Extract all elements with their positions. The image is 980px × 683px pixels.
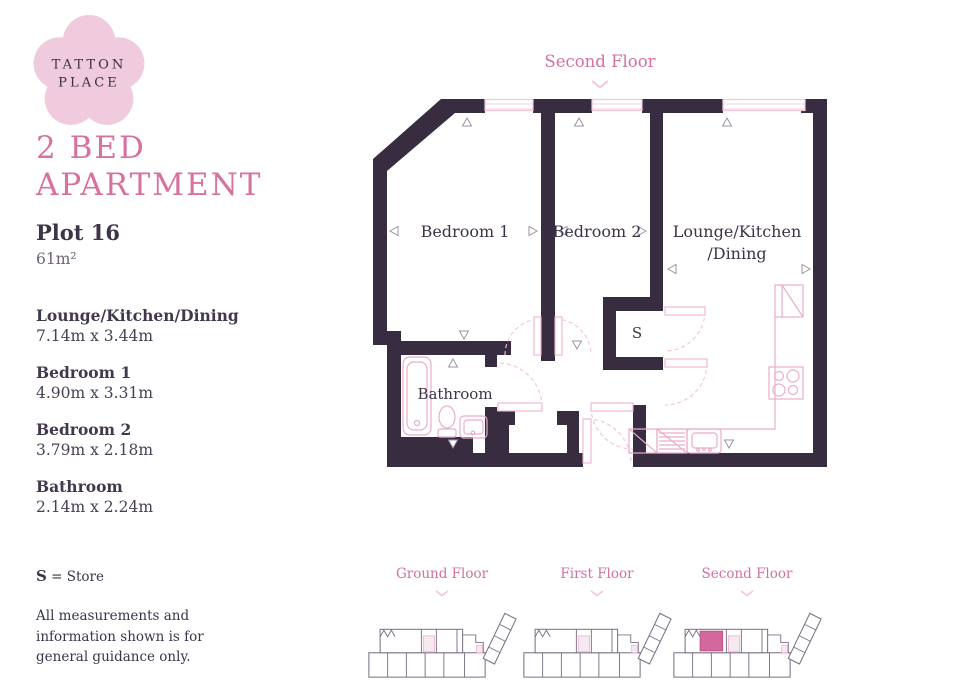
basin — [460, 416, 487, 438]
floorplan-title: Second Floor — [365, 52, 835, 71]
room-entry: Lounge/Kitchen/Dining 7.14m x 3.44m — [36, 305, 239, 347]
floor-option-ground[interactable]: Ground Floor — [365, 566, 519, 683]
room-dimensions: 4.90m x 3.31m — [36, 383, 239, 404]
door-hall — [591, 403, 633, 449]
floor-option-first[interactable]: First Floor — [520, 566, 674, 683]
room-label-lounge-line1: Lounge/Kitchen — [673, 222, 802, 241]
site-plan-second — [672, 604, 822, 679]
room-label-bedroom1: Bedroom 1 — [421, 222, 510, 241]
site-plan-ground — [367, 604, 517, 679]
sink — [687, 429, 721, 453]
door-store — [665, 307, 705, 351]
walls — [373, 99, 827, 467]
room-label-store: S — [632, 324, 642, 342]
room-name: Bedroom 2 — [36, 419, 239, 440]
floor-option-second[interactable]: Second Floor — [670, 566, 824, 683]
chevron-down-icon — [365, 582, 519, 601]
store-legend-text: = Store — [51, 569, 104, 585]
chevron-down-icon — [520, 582, 674, 601]
door-bedroom2 — [555, 317, 591, 355]
chevron-down-icon — [670, 582, 824, 601]
room-entry: Bathroom 2.14m x 2.24m — [36, 476, 239, 518]
floorplan-drawing: Bedroom 1 Bedroom 2 Lounge/Kitchen /Dini… — [365, 85, 835, 485]
toilet — [438, 406, 456, 437]
disclaimer-line2: information shown is for — [36, 627, 204, 648]
room-dimension-list: Lounge/Kitchen/Dining 7.14m x 3.44m Bedr… — [36, 305, 239, 533]
kitchen-counter — [657, 317, 775, 429]
plot-number: Plot 16 — [36, 220, 120, 245]
room-name: Bathroom — [36, 476, 239, 497]
room-dimensions: 7.14m x 3.44m — [36, 326, 239, 347]
room-label-bedroom2: Bedroom 2 — [553, 222, 642, 241]
floor-option-label: Second Floor — [670, 566, 824, 582]
brand-name-line2: PLACE — [58, 76, 120, 91]
site-plan-first — [522, 604, 672, 679]
highlighted-plot — [700, 631, 723, 651]
room-dimensions: 2.14m x 2.24m — [36, 497, 239, 518]
listing-title: 2 BED APARTMENT — [36, 130, 262, 204]
room-name: Bedroom 1 — [36, 362, 239, 383]
door-entrance — [583, 419, 631, 463]
listing-title-line2: APARTMENT — [36, 167, 262, 204]
store-legend: S = Store — [36, 567, 104, 585]
store-legend-key: S — [36, 567, 47, 585]
plot-area: 61m² — [36, 250, 77, 268]
fridge — [775, 285, 803, 317]
room-name: Lounge/Kitchen/Dining — [36, 305, 239, 326]
room-entry: Bedroom 2 3.79m x 2.18m — [36, 419, 239, 461]
disclaimer: All measurements and information shown i… — [36, 606, 204, 668]
door-bathroom — [498, 363, 542, 411]
brand-logo: TATTON PLACE — [28, 10, 150, 136]
hob — [769, 367, 803, 399]
window — [723, 100, 805, 111]
disclaimer-line3: general guidance only. — [36, 647, 204, 668]
room-label-lounge-line2: /Dining — [707, 244, 766, 263]
listing-title-line1: 2 BED — [36, 130, 262, 167]
door-lounge — [665, 359, 707, 405]
disclaimer-line1: All measurements and — [36, 606, 204, 627]
room-label-bathroom: Bathroom — [417, 385, 492, 403]
window — [485, 100, 533, 111]
window — [592, 100, 642, 111]
room-dimensions: 3.79m x 2.18m — [36, 440, 239, 461]
floor-option-label: First Floor — [520, 566, 674, 582]
floor-option-label: Ground Floor — [365, 566, 519, 582]
brand-name-line1: TATTON — [52, 57, 127, 72]
draining-board — [657, 429, 687, 453]
room-entry: Bedroom 1 4.90m x 3.31m — [36, 362, 239, 404]
